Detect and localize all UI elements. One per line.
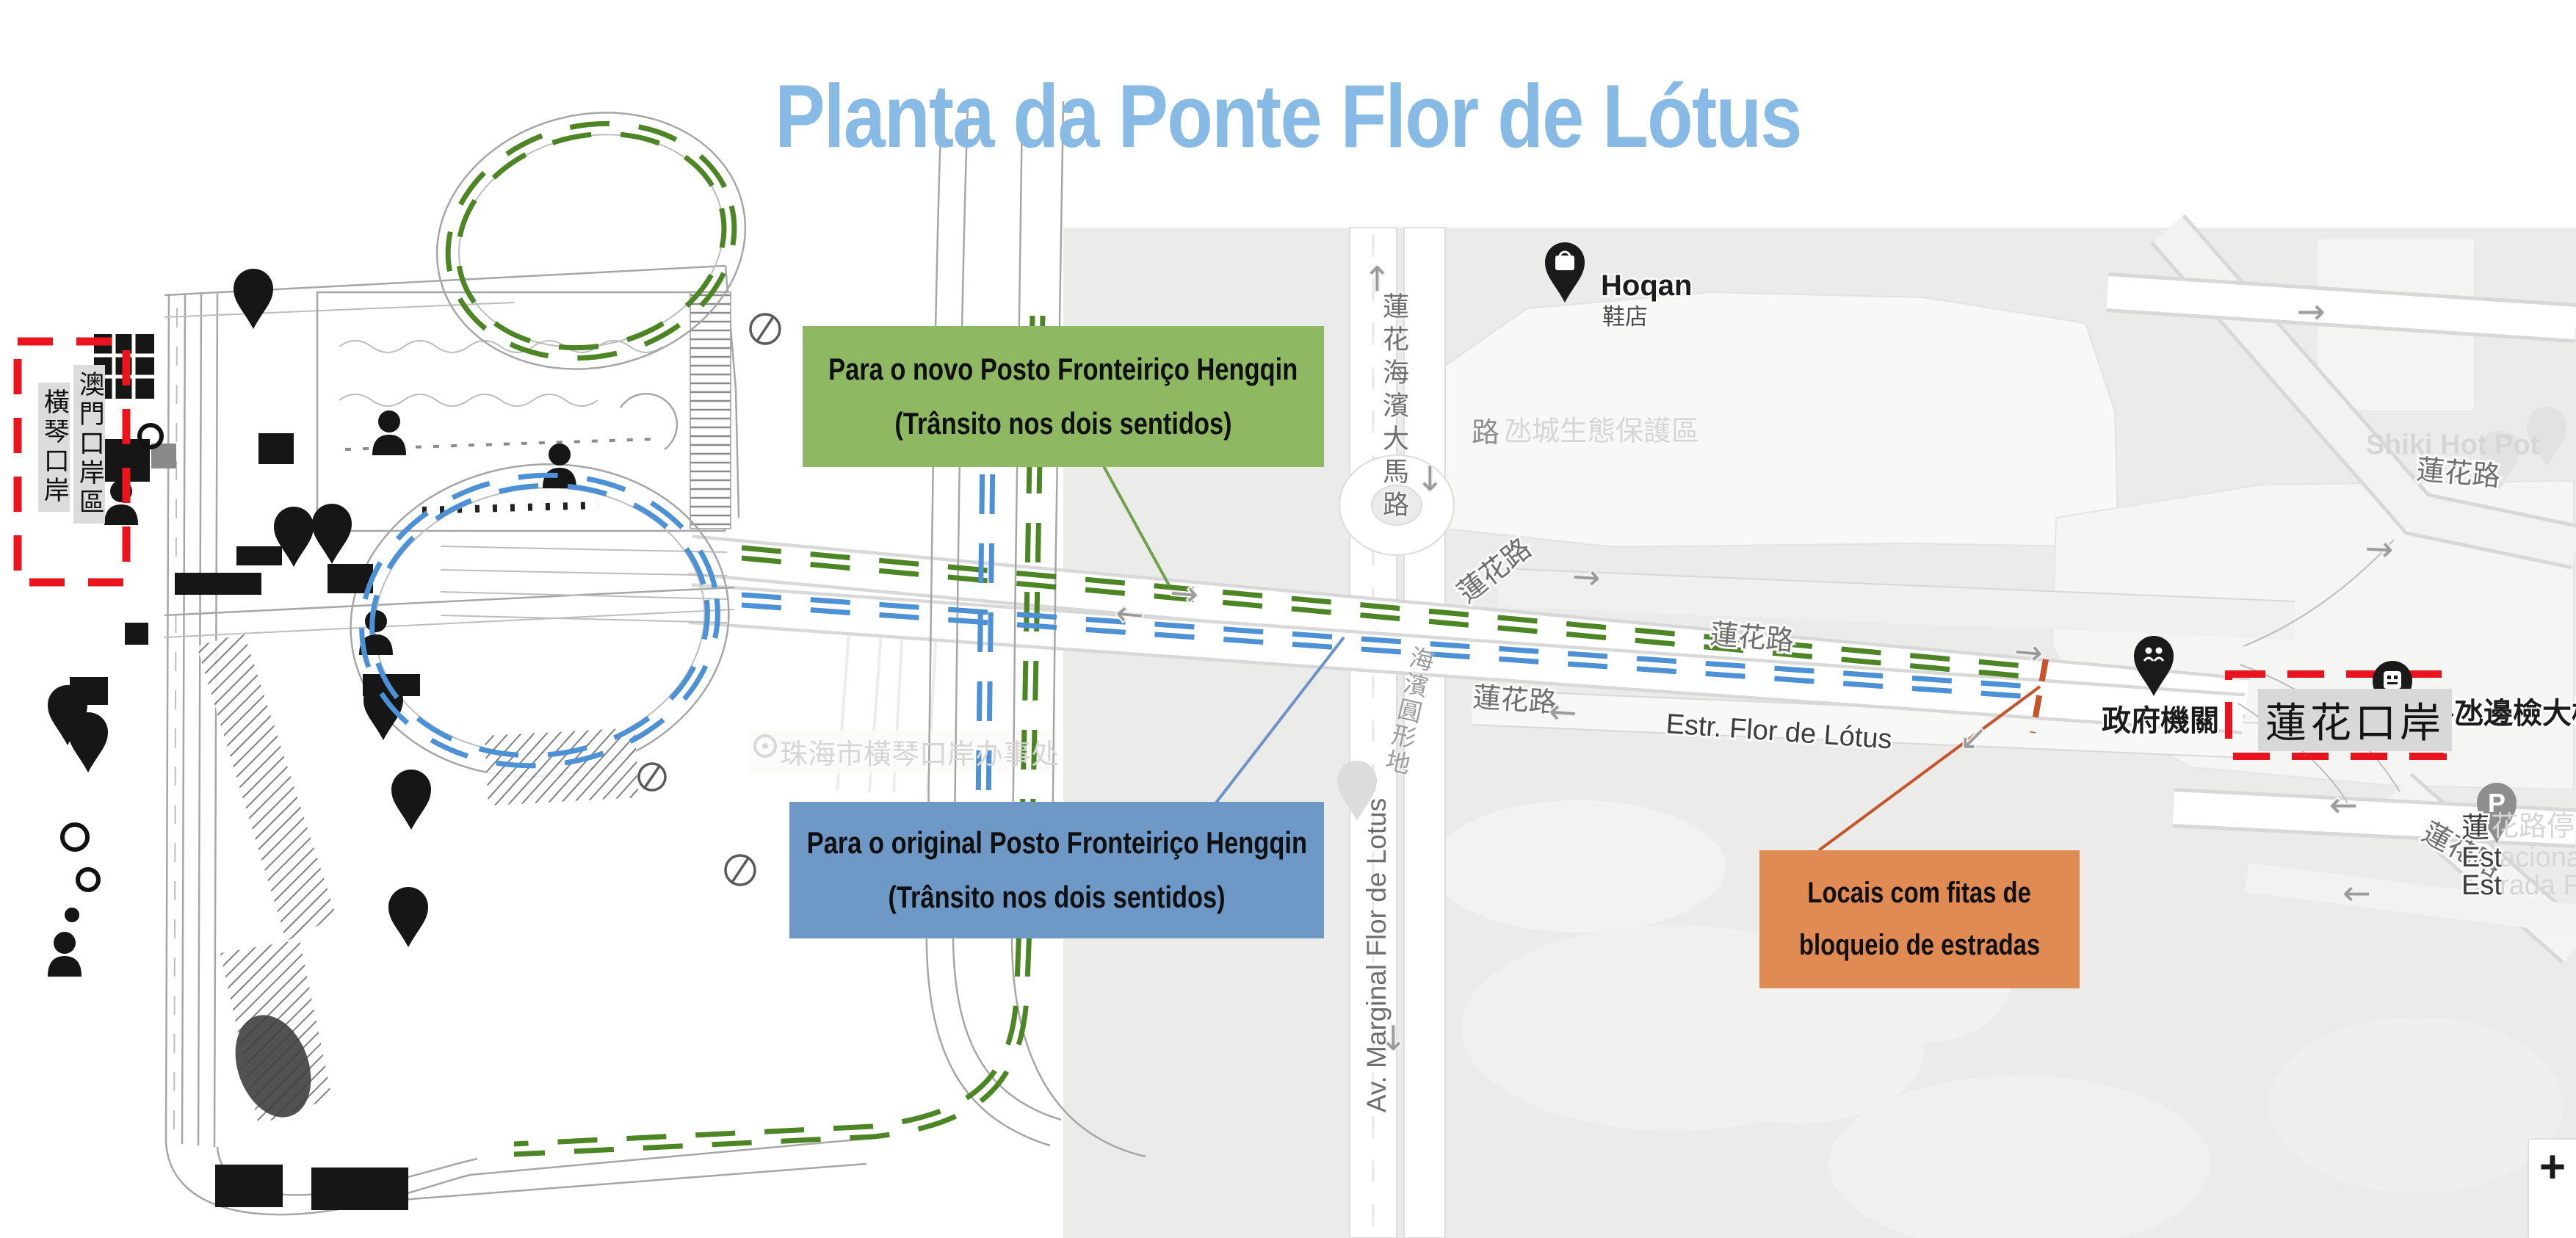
arrow-right-icon: → bbox=[1571, 556, 1602, 598]
map-canvas[interactable]: .rl{font-family:"Liberation Sans",sans-s… bbox=[0, 0, 2576, 1238]
poi-shiki: Shiki Hot Pot bbox=[2366, 430, 2540, 460]
arrow-right-icon: → bbox=[2297, 292, 2326, 331]
map-pin-icon bbox=[388, 887, 428, 947]
zoom-in-button[interactable]: + bbox=[2529, 1140, 2576, 1195]
map-pin-icon bbox=[234, 269, 273, 329]
person-icon bbox=[372, 410, 406, 455]
person-icon bbox=[104, 480, 138, 525]
poi-hoqan: Hoqan bbox=[1601, 269, 1692, 302]
arrow-left-icon: ← bbox=[1114, 593, 1146, 634]
arrow-left-icon: ← bbox=[1547, 691, 1578, 733]
slide: .rl{font-family:"Liberation Sans",sans-s… bbox=[0, 0, 2576, 1238]
map-pin-icon bbox=[391, 770, 431, 830]
arrow-down-left-icon: ↙ bbox=[1959, 717, 1988, 757]
blockade-line2: bloqueio de estradas bbox=[1799, 929, 2040, 962]
arrow-down-icon: ↓ bbox=[1416, 459, 1444, 499]
road-av-marginal: Av. Marginal Flor de Lotus bbox=[1361, 797, 1395, 1113]
road-lotus-seaside-ave: 蓮花海濱大馬路 bbox=[1375, 292, 1413, 524]
new-post-callout: Para o novo Posto Fronteiriço Hengqin (T… bbox=[803, 326, 1324, 467]
original-post-callout: Para o original Posto Fronteiriço Hengqi… bbox=[789, 802, 1324, 938]
map-pin-icon bbox=[68, 712, 108, 772]
arrow-left-icon: ← bbox=[2329, 785, 2358, 825]
eco-zone-label: 氹城生態保護區 bbox=[1504, 416, 1699, 447]
parking-label-pt2-dark: Est bbox=[2461, 870, 2502, 901]
parking-label-cn-dark: 蓮 bbox=[2461, 813, 2489, 844]
original-post-line1: Para o original Posto Fronteiriço Hengqi… bbox=[806, 825, 1306, 861]
parking-label-pt2: rada Flor d bbox=[2500, 870, 2576, 901]
original-post-line2: (Trânsito nos dois sentidos) bbox=[888, 880, 1225, 915]
arrow-right-icon: → bbox=[1168, 572, 1200, 614]
hengqin-port-label: 橫琴口岸 bbox=[38, 383, 70, 512]
poi-hoqan-sub: 鞋店 bbox=[1602, 304, 1648, 330]
eco-zone-label-dark: 路 bbox=[1472, 418, 1499, 449]
poi-zhuhai-office: 珠海市橫琴口岸办事处 bbox=[780, 739, 1059, 770]
new-post-line1: Para o novo Posto Fronteiriço Hengqin bbox=[828, 352, 1298, 387]
page-title: Planta da Ponte Flor de Lótus bbox=[206, 65, 2370, 167]
parking-label-pt1-dark: Est bbox=[2461, 842, 2502, 873]
parking-label-cn: 花路停車場 bbox=[2491, 811, 2576, 842]
macau-port-area-label: 澳門口岸區 bbox=[73, 365, 105, 524]
arrow-right-icon: → bbox=[2364, 528, 2394, 569]
arrow-right-icon: → bbox=[2013, 631, 2044, 673]
person-icon bbox=[48, 932, 82, 977]
new-post-line2: (Trânsito nos dois sentidos) bbox=[894, 406, 1231, 441]
blockade-callout: Locais com fitas de bloqueio de estradas bbox=[1759, 850, 2080, 988]
map-zoom-control: + bbox=[2529, 1140, 2576, 1238]
road-lotus-sw: 蓮花路 bbox=[1472, 682, 1557, 719]
map-pin-icon bbox=[312, 504, 352, 564]
parking-label-pt1: acionamento bbox=[2500, 842, 2576, 873]
poi-government: 政府機關 bbox=[2102, 705, 2219, 737]
blockade-line1: Locais com fitas de bbox=[1808, 877, 2031, 910]
lotus-port-label: 蓮花口岸 bbox=[2258, 689, 2452, 751]
arrow-left-icon: ← bbox=[2342, 873, 2371, 913]
